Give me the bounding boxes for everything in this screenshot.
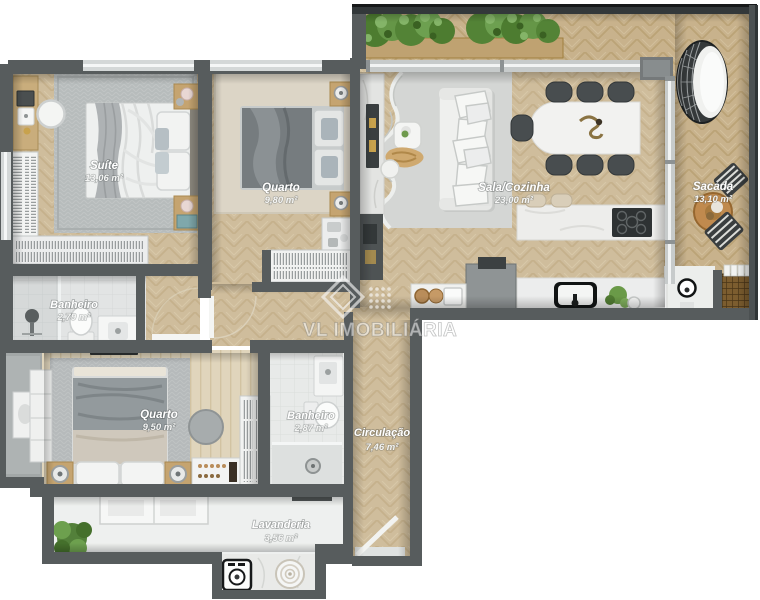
svg-text:23,00 m²: 23,00 m² bbox=[494, 195, 534, 206]
svg-text:Sacada: Sacada bbox=[693, 181, 734, 193]
svg-text:9,80 m²: 9,80 m² bbox=[265, 195, 299, 206]
svg-text:9,50 m²: 9,50 m² bbox=[143, 422, 177, 433]
svg-text:13,06 m²: 13,06 m² bbox=[85, 173, 124, 184]
svg-text:2,87 m²: 2,87 m² bbox=[294, 423, 329, 434]
svg-text:Suíte: Suíte bbox=[90, 160, 119, 172]
svg-text:Circulação: Circulação bbox=[354, 427, 411, 439]
svg-text:Lavanderia: Lavanderia bbox=[252, 519, 310, 531]
svg-text:Banheiro: Banheiro bbox=[50, 299, 98, 311]
svg-text:Sala/Cozinha: Sala/Cozinha bbox=[478, 182, 550, 194]
svg-text:Quarto: Quarto bbox=[140, 409, 178, 421]
svg-text:Quarto: Quarto bbox=[262, 182, 300, 194]
svg-text:Banheiro: Banheiro bbox=[287, 410, 335, 422]
svg-text:13,10 m²: 13,10 m² bbox=[694, 194, 733, 205]
svg-text:3,56 m²: 3,56 m² bbox=[265, 533, 299, 544]
svg-text:7,46 m²: 7,46 m² bbox=[366, 442, 400, 453]
svg-text:2,79 m²: 2,79 m² bbox=[57, 312, 92, 323]
svg-text:VL IMOBILIÁRIA: VL IMOBILIÁRIA bbox=[303, 319, 457, 341]
